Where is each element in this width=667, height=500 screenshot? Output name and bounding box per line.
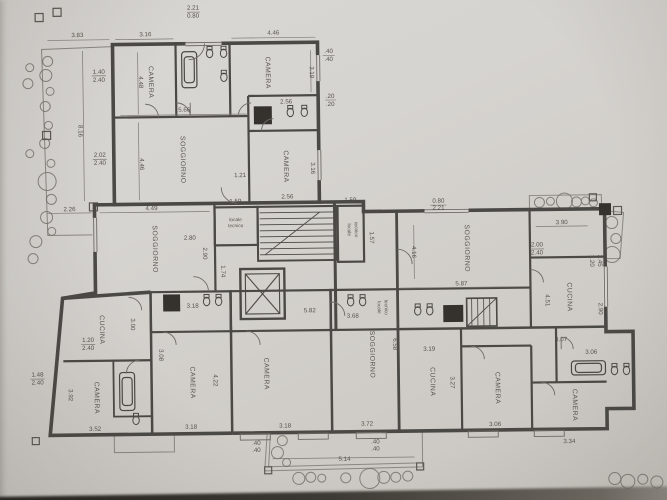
dim-text: 3.00	[129, 318, 136, 331]
dim-text: 3.83	[71, 32, 84, 39]
dim-text: 1.74	[219, 265, 226, 278]
dim-text: 2.40	[94, 160, 107, 167]
dim-text: .40	[324, 56, 333, 63]
dim-text: 2.40	[93, 77, 106, 84]
dim-text: 2.40	[82, 345, 95, 352]
dim-text: 3.16	[139, 31, 152, 38]
dim-text: 2.02	[94, 152, 107, 159]
dim-text: 8.16	[76, 125, 83, 138]
room-label-cucina-2: CUCINA	[565, 282, 572, 311]
dim-text: 1.20	[82, 337, 95, 344]
dim-text: 4.46	[267, 30, 280, 37]
room-label-camera-6: CAMERA	[262, 358, 269, 390]
dim-text: 3.27	[449, 376, 456, 389]
dim-text: 0.80	[187, 13, 200, 20]
dim-text: .20	[326, 93, 335, 100]
dim-text: 3.08	[157, 349, 164, 362]
dim-text: 3.90	[556, 219, 569, 226]
dim-text: 1.21	[234, 172, 247, 179]
dim-text: 4.49	[145, 205, 158, 212]
dim-text: 3.72	[361, 420, 374, 427]
room-label-camera-2: CAMERA	[264, 57, 271, 89]
scanned-floor-plan-photo: CAMERA CAMERA CAMERA SOGGIORNO SOGGIORNO…	[0, 0, 667, 500]
dim-text: 2.56	[281, 193, 294, 200]
room-label-camera-7: CAMERA	[494, 372, 501, 404]
dim-text: 2.21	[187, 5, 200, 12]
dim-text: .40	[252, 447, 261, 454]
dim-text: 3.68	[347, 313, 360, 320]
room-label-camera-3: CAMERA	[282, 150, 289, 182]
room-label-cucina-3: CUCINA	[428, 367, 435, 396]
dim-text: 2.21	[432, 205, 445, 212]
stairs-icon	[257, 206, 336, 261]
dim-text: .40	[371, 445, 380, 452]
room-label-locale-tecnico-2a: locale	[346, 223, 352, 236]
dim-text: 4.07	[555, 336, 568, 343]
dim-text: 1.40	[93, 69, 106, 76]
dim-text: 3.19	[423, 346, 436, 353]
dim-text: 1.59	[344, 197, 357, 204]
dim-text: 2.90	[597, 303, 604, 316]
dim-text: 3.18	[187, 303, 200, 310]
room-label-locale-tecnico-1b: tecnico	[228, 223, 244, 229]
dim-text: 4.16	[410, 246, 417, 259]
room-label-soggiorno-1: SOGGIORNO	[179, 136, 187, 184]
post-squares	[27, 1, 625, 476]
room-label-camera-8: CAMERA	[571, 389, 578, 421]
exterior-walls	[45, 38, 634, 435]
room-label-locale-tecnico-2b: tecnico	[353, 222, 359, 238]
dim-text: 4.22	[212, 374, 219, 387]
photo-left-shadow	[0, 0, 6, 500]
dim-text: 2.56	[280, 98, 293, 105]
dim-text: 3.06	[489, 421, 502, 428]
dim-text: 2.90	[201, 247, 208, 260]
dim-text: 2.40	[32, 380, 45, 387]
room-label-soggiorno-3: SOGGIORNO	[368, 331, 376, 379]
room-label-soggiorno-2: SOGGIORNO	[151, 225, 159, 273]
dim-text: 3.19	[308, 66, 315, 79]
room-label-cucina-1: CUCINA	[98, 315, 105, 344]
room-label-soggiorno-4: SOGGIORNO	[463, 225, 471, 273]
toilet-icons	[128, 41, 630, 424]
room-label-camera-1: CAMERA	[147, 66, 154, 98]
dim-text: 3.18	[279, 422, 292, 429]
dim-text: 2.26	[63, 206, 76, 213]
dim-text: 4.51	[544, 294, 551, 307]
dim-text: 1.48	[31, 372, 44, 379]
dim-text: 3.16	[309, 162, 316, 175]
dim-text: 6.58	[391, 338, 398, 351]
room-label-locale-tecnico-3b: tecnico	[383, 300, 389, 316]
dim-text: .40	[324, 48, 333, 55]
room-label-locale-tecnico-1a: locale	[229, 217, 242, 223]
dim-text: 1.57	[368, 231, 375, 244]
room-label-camera-4: CAMERA	[93, 382, 100, 414]
dim-text: 4.46	[138, 158, 145, 171]
dim-text: 3.06	[585, 349, 598, 356]
service-stairs-icon	[467, 298, 497, 326]
dim-text: 5.14	[338, 456, 351, 463]
dim-text: 1.59	[229, 198, 242, 205]
dim-text: 3.92	[67, 389, 74, 402]
dim-text: 2.45	[596, 255, 603, 268]
dim-text: 3.18	[185, 424, 198, 431]
dim-text: 2.40	[531, 249, 544, 256]
dim-text: .20	[326, 101, 335, 108]
dim-text: 3.52	[89, 426, 102, 433]
dim-text: 5.66	[178, 107, 191, 114]
room-label-locale-tecnico-3a: locale	[376, 301, 382, 314]
dim-text: 4.48	[137, 76, 144, 89]
floor-plan-canvas: CAMERA CAMERA CAMERA SOGGIORNO SOGGIORNO…	[0, 0, 667, 500]
dim-text: 5.87	[455, 280, 468, 287]
dim-text: 3.34	[563, 438, 576, 445]
dim-text: 1.20	[588, 255, 595, 268]
dim-text: 2.00	[531, 241, 544, 248]
room-label-camera-5: CAMERA	[188, 366, 195, 398]
elevator-icon	[240, 269, 285, 320]
dim-text: 5.82	[304, 307, 317, 314]
dim-text: 2.80	[184, 235, 197, 242]
